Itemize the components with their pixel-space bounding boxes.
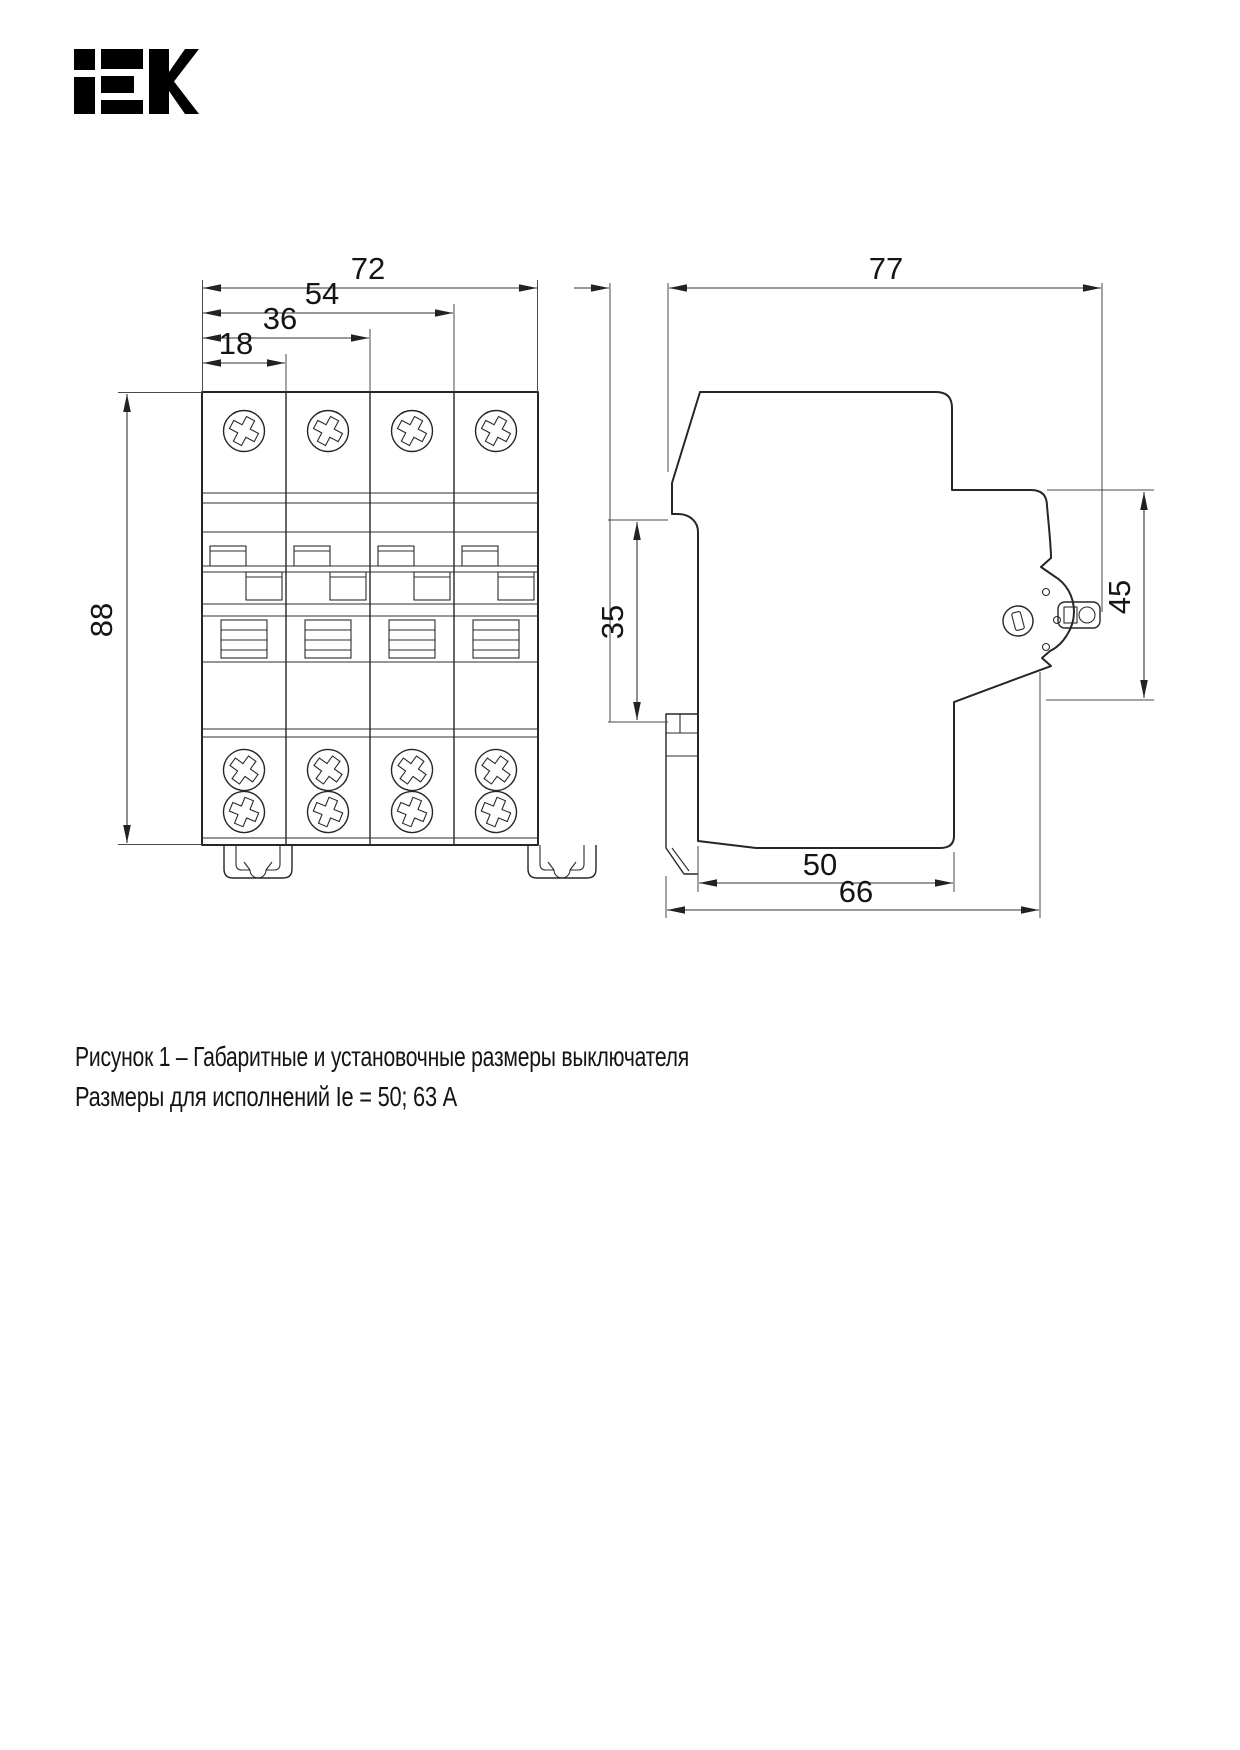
- front-din-clips: [224, 845, 596, 878]
- dim-label-18: 18: [219, 326, 253, 361]
- document-page: IEK: [0, 0, 1240, 1750]
- side-toggle-lever: [1003, 589, 1100, 651]
- caption-line-1: Рисунок 1 – Габаритные и установочные ра…: [75, 1041, 689, 1072]
- side-din-latch: [666, 714, 698, 874]
- side-dimension-lines: [574, 288, 1144, 910]
- dim-label-66: 66: [839, 874, 873, 909]
- figure-caption: Рисунок 1 – Габаритные и установочные ра…: [75, 1041, 689, 1112]
- dim-label-50: 50: [803, 847, 837, 882]
- iek-logo-icon: IEK: [74, 49, 199, 114]
- front-extension-lines: [118, 280, 538, 845]
- dim-label-35: 35: [595, 605, 630, 639]
- dim-label-72: 72: [351, 251, 385, 286]
- front-toggle-handles: [210, 546, 534, 600]
- dim-label-77: 77: [869, 251, 903, 286]
- front-view-drawing: 72 54 36 18 88: [84, 251, 596, 878]
- caption-line-2: Размеры для исполнений Ie = 50; 63 А: [75, 1081, 457, 1112]
- dim-label-88: 88: [84, 603, 119, 637]
- side-view-drawing: 77 35 45 50 66: [574, 251, 1154, 918]
- dim-label-45: 45: [1102, 580, 1137, 614]
- dim-label-36: 36: [263, 301, 297, 336]
- dim-label-54: 54: [305, 276, 339, 311]
